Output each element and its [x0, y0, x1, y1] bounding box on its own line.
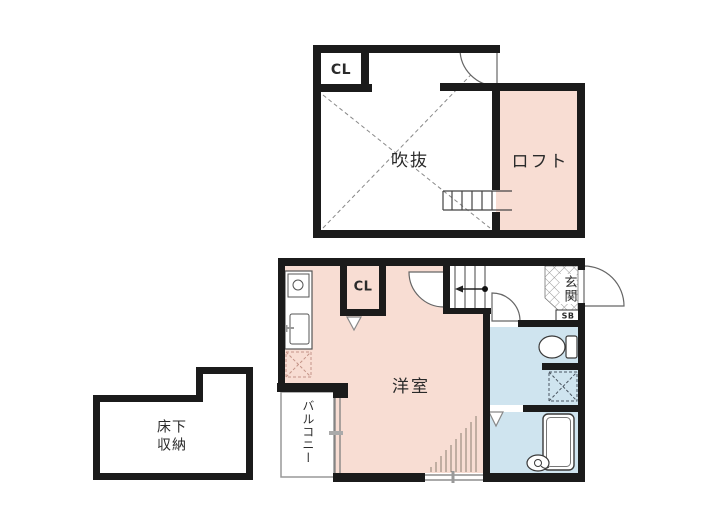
wall-segment [542, 363, 578, 370]
wall-segment [278, 258, 585, 266]
loft-floor [496, 87, 579, 234]
wall-segment [340, 266, 347, 316]
wall-segment [440, 83, 585, 91]
stair-arrow-dot [482, 286, 488, 292]
kitchen-counter-icon [283, 271, 313, 349]
entrance-hatch [545, 266, 578, 310]
wall-segment [518, 320, 585, 327]
upper-floor [313, 45, 585, 238]
wall-segment [313, 45, 321, 238]
floor-plan-canvas: CL 吹抜 ロフト CL 洋室 玄関 SB バルコニー 床下 収納 [0, 0, 720, 528]
wall-segment [278, 266, 285, 392]
wall-segment [361, 48, 369, 92]
wall-segment [577, 83, 585, 238]
wall-segment [333, 392, 348, 398]
wall-segment [313, 45, 500, 53]
lower-floor [277, 258, 624, 483]
underfloor-storage-outline [97, 371, 250, 477]
toilet-icon [539, 336, 577, 358]
door-arc-toilet-room [492, 293, 520, 321]
atrium-cross-lines [323, 55, 490, 228]
wall-segment [578, 303, 585, 482]
wall-segment [578, 258, 585, 270]
floor-plan-drawing [0, 0, 720, 528]
wall-segment [277, 383, 348, 392]
wall-segment [492, 212, 500, 238]
wall-segment [379, 266, 386, 316]
burner-icon [293, 280, 303, 290]
door-arc-front-entrance [584, 266, 624, 306]
stairs-lower-icon [455, 264, 488, 308]
stair-arrowhead [455, 286, 463, 293]
wall-segment [313, 230, 585, 238]
wall-segment [333, 473, 425, 482]
wall-segment [443, 266, 450, 313]
wall-segment [492, 91, 500, 190]
balcony-area [281, 392, 334, 477]
wall-segment [483, 473, 585, 482]
wall-segment [483, 313, 490, 482]
drain-icon [527, 455, 549, 471]
wall-segment [523, 405, 578, 412]
